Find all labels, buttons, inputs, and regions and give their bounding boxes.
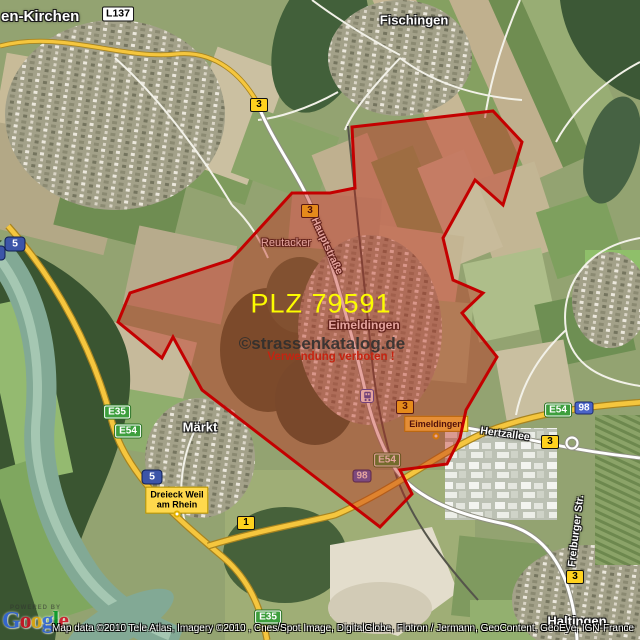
infobox-dreieck-weil: Dreieck Weil am Rhein (145, 487, 208, 514)
badge-a5-edge: 5 (0, 246, 6, 261)
place-label-eimeldingen: Eimeldingen (328, 318, 399, 332)
infobox-dreieck-line1: Dreieck Weil (150, 490, 203, 500)
vineyards (595, 415, 640, 565)
infobox-dreieck-line2: am Rhein (157, 500, 198, 510)
badge-a5-north: 5 (5, 237, 26, 252)
badge-l137: L137 (102, 7, 134, 22)
badge-b3-hertzallee: 3 (541, 435, 559, 449)
eimeldingen-exit-marker-dot (433, 433, 440, 440)
place-label-maerkt: Märkt (183, 420, 218, 435)
badge-e54-east: E54 (545, 404, 571, 417)
badge-b1: 1 (237, 516, 255, 530)
copyright-text: Map data ©2010 Tele Atlas, Imagery ©2010… (52, 623, 634, 634)
watermark-warning: Verwendung verboten ! (267, 351, 394, 363)
badge-e54-center: E54 (374, 454, 400, 467)
google-logo-letter: o (20, 608, 31, 634)
badge-a98-center: 98 (353, 470, 372, 483)
place-label-fischingen: Fischingen (380, 13, 449, 28)
plz-code-label: PLZ 79591 (250, 289, 391, 320)
google-logo-letter: G (2, 608, 20, 634)
infobox-eimeldingen-exit: Eimeldingen (404, 416, 468, 432)
badge-b3-haltingen: 3 (566, 570, 584, 584)
train-station-icon (360, 389, 374, 403)
dreieck-marker-dot (174, 511, 181, 518)
badge-e54-west: E54 (115, 425, 141, 438)
badge-e35-south: E35 (255, 611, 281, 624)
infobox-eimeldingen-exit-label: Eimeldingen (409, 419, 463, 429)
badge-e35-west: E35 (104, 406, 130, 419)
place-label-reutacker: Reutacker (261, 237, 311, 249)
place-label-efringen-kirchen: en-Kirchen (1, 8, 79, 25)
satellite-imagery (0, 0, 640, 640)
badge-a5-dreieck: 5 (142, 470, 163, 485)
badge-b3-eimeldingen: 3 (396, 400, 414, 414)
map-canvas[interactable]: en-Kirchen Fischingen Märkt Haltingen Ei… (0, 0, 640, 640)
badge-b3-north: 3 (250, 98, 268, 112)
badge-b3-reutacker: 3 (301, 204, 319, 218)
badge-a98-east: 98 (575, 402, 594, 415)
google-logo-letter: o (31, 608, 42, 634)
